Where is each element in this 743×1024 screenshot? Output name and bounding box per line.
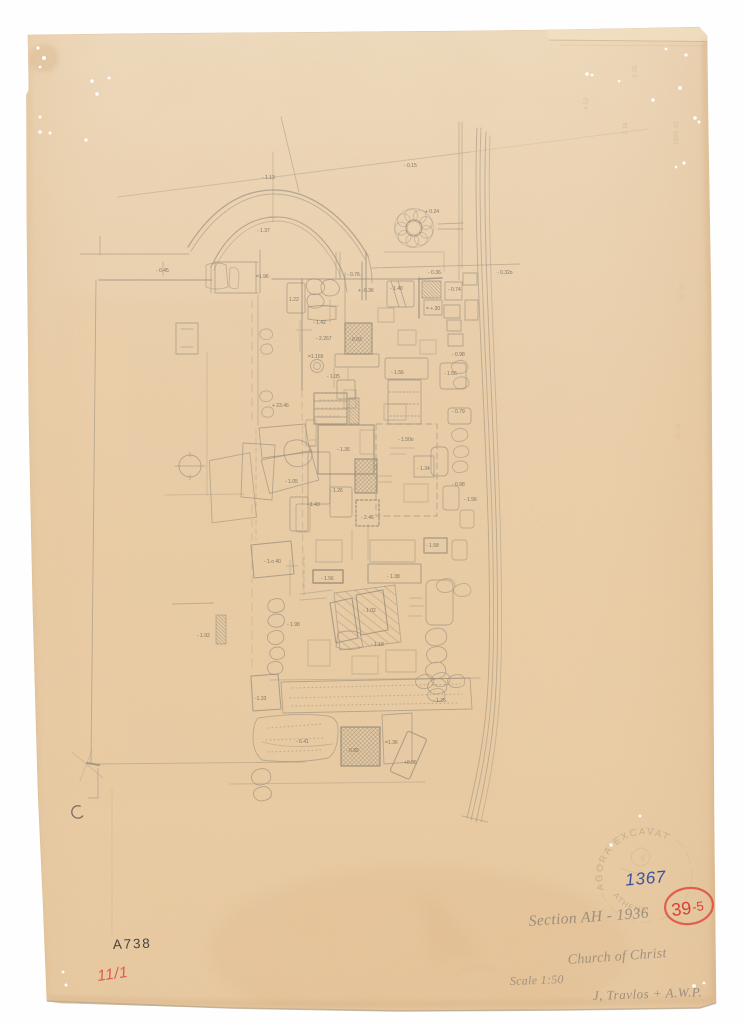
svg-text:- 1.38: - 1.38 bbox=[387, 574, 400, 580]
svg-text:- 0.89: - 0.89 bbox=[346, 748, 359, 754]
svg-text:1367: 1367 bbox=[624, 867, 667, 890]
svg-text:- 0.53: - 0.53 bbox=[349, 337, 362, 343]
svg-text:- 1.36: - 1.36 bbox=[337, 447, 350, 453]
svg-text:35 48: 35 48 bbox=[675, 423, 682, 440]
svg-text:- 2.46: - 2.46 bbox=[361, 515, 374, 521]
svg-text:- 1.02: - 1.02 bbox=[363, 608, 376, 614]
svg-text:39: 39 bbox=[670, 898, 692, 920]
svg-text:- 1.42: - 1.42 bbox=[313, 320, 326, 326]
svg-text:Scale 1:50: Scale 1:50 bbox=[510, 972, 564, 988]
svg-text:A738: A738 bbox=[113, 936, 152, 952]
svg-text:- 6.41: - 6.41 bbox=[296, 739, 309, 745]
svg-text:- 1.o 40: - 1.o 40 bbox=[264, 559, 281, 565]
svg-text:- 0.15: - 0.15 bbox=[404, 163, 417, 169]
svg-text:- 1.40: - 1.40 bbox=[390, 286, 403, 292]
svg-text:- 1.56: - 1.56 bbox=[464, 497, 477, 503]
svg-text:- 1.58: - 1.58 bbox=[426, 543, 439, 549]
svg-text:- 0.36.: - 0.36. bbox=[428, 270, 442, 276]
svg-text:2.18: 2.18 bbox=[622, 122, 629, 135]
svg-text:- 1.92: - 1.92 bbox=[197, 633, 210, 639]
svg-text:- 1.43: - 1.43 bbox=[307, 502, 320, 508]
svg-text:- 0.79: - 0.79 bbox=[452, 409, 465, 415]
svg-text:- 2.267: - 2.267 bbox=[316, 336, 332, 342]
svg-text:- 1.05: - 1.05 bbox=[327, 374, 340, 380]
svg-text:- 1.56: - 1.56 bbox=[444, 371, 457, 377]
svg-text:- 1.56: - 1.56 bbox=[321, 576, 334, 582]
svg-text:-1.33: -1.33 bbox=[255, 696, 267, 702]
svg-text:- 1.13: - 1.13 bbox=[262, 175, 275, 181]
svg-text:- 1.26.: - 1.26. bbox=[433, 698, 447, 704]
svg-text:=1.36: =1.36 bbox=[385, 740, 398, 746]
svg-text:- 1.18: - 1.18 bbox=[371, 642, 384, 648]
svg-text:- 1.56: - 1.56 bbox=[391, 370, 404, 376]
svg-text:- 0.76.: - 0.76. bbox=[347, 272, 361, 278]
svg-text:- 1.37: - 1.37 bbox=[257, 228, 270, 234]
svg-text:+ 23.46: + 23.46 bbox=[272, 403, 289, 409]
svg-text:+0.86: +0.86 bbox=[404, 760, 417, 766]
svg-text:- 1.98: - 1.98 bbox=[287, 622, 300, 628]
svg-text:3.25: 3.25 bbox=[632, 65, 639, 78]
svg-text:- 0.32o: - 0.32o bbox=[497, 270, 513, 276]
svg-text:52 03: 52 03 bbox=[679, 283, 686, 300]
svg-text:- 1.50o: - 1.50o bbox=[398, 437, 414, 443]
svg-text:=1.165: =1.165 bbox=[308, 354, 324, 360]
svg-text:+ 0.24: + 0.24 bbox=[425, 209, 439, 215]
svg-text:- 0.98: - 0.98 bbox=[452, 482, 465, 488]
svg-text:- 1.05: - 1.05 bbox=[285, 479, 298, 485]
svg-text:=1.96: =1.96 bbox=[256, 274, 269, 280]
svg-text:- 0.98: - 0.98 bbox=[452, 352, 465, 358]
svg-text:+ -0.36: + -0.36 bbox=[358, 288, 374, 294]
svg-text:- 0.45: - 0.45 bbox=[156, 268, 169, 274]
svg-text:- 1.26: - 1.26 bbox=[330, 488, 343, 494]
svg-text:- 0.74: - 0.74 bbox=[448, 287, 461, 293]
svg-text:-5: -5 bbox=[691, 898, 704, 914]
svg-text:- 1.34: - 1.34 bbox=[417, 466, 430, 472]
svg-text:4.52: 4.52 bbox=[583, 97, 590, 110]
svg-text:1955 33: 1955 33 bbox=[673, 121, 680, 145]
svg-text:= +.30: = +.30 bbox=[426, 306, 440, 312]
svg-text:1.22: 1.22 bbox=[289, 297, 299, 303]
